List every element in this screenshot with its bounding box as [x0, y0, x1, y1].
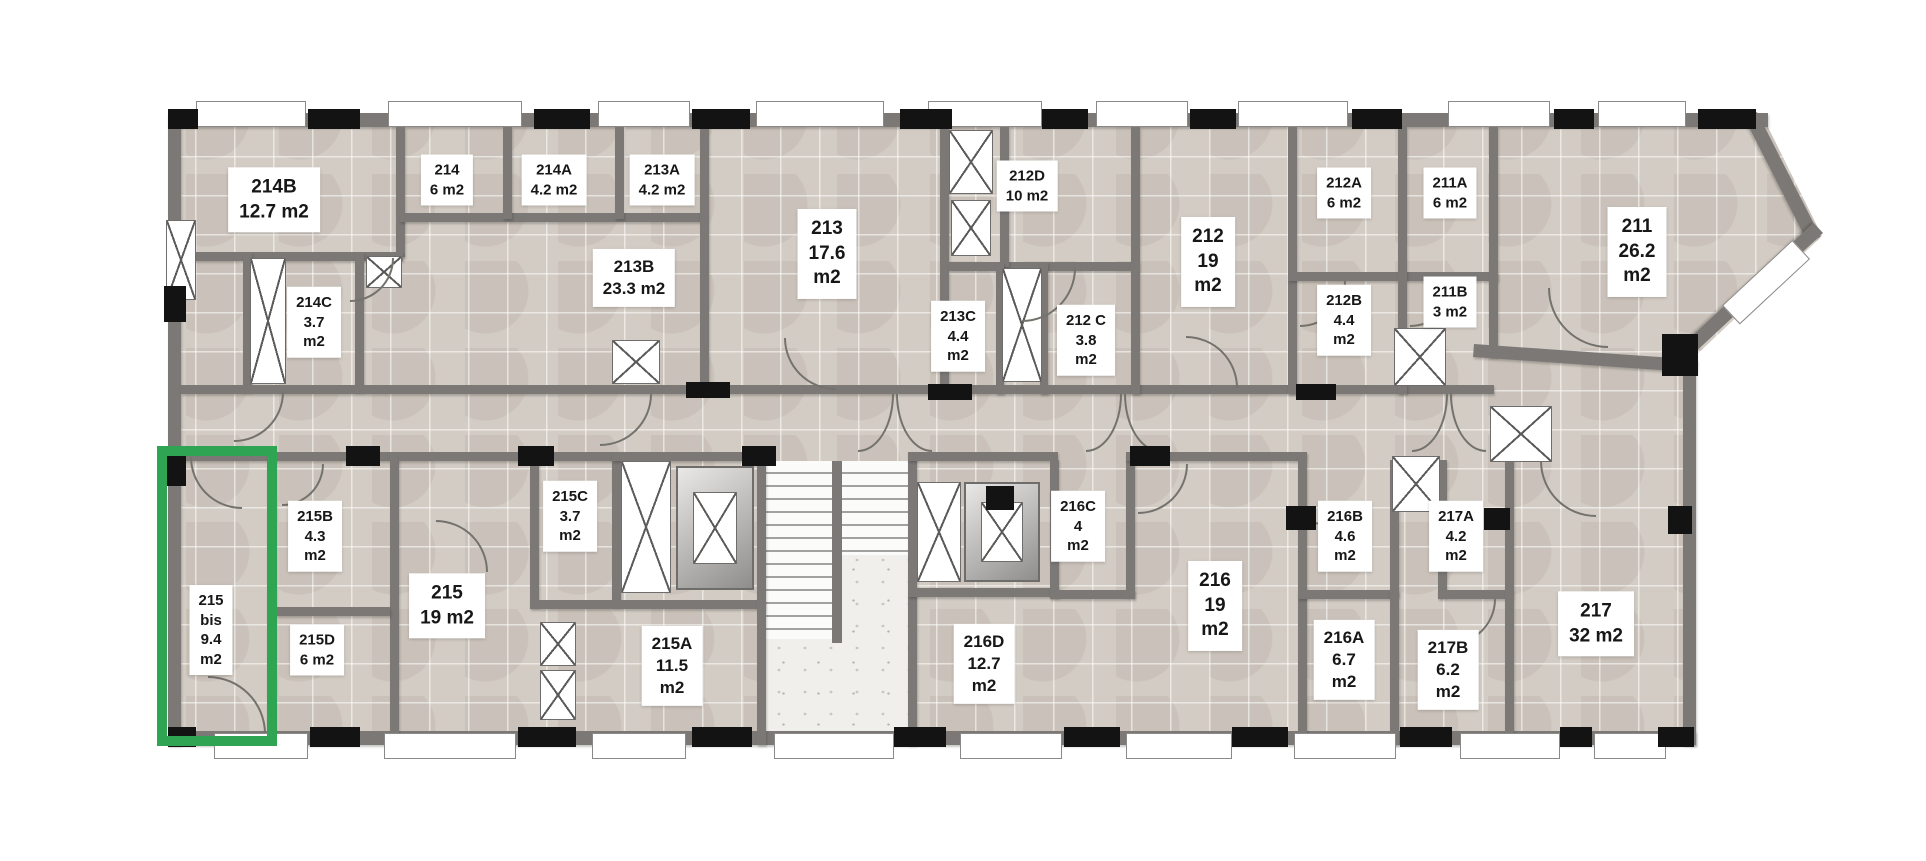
room-label-line: m2: [1326, 330, 1362, 350]
room-label-line: 32 m2: [1569, 624, 1623, 649]
room-label-line: 12.7: [964, 653, 1005, 675]
column-marker: [1042, 109, 1088, 129]
room-label-line: 4.6: [1327, 526, 1363, 546]
column-marker: [1668, 506, 1692, 534]
room-label-212c[interactable]: 212 C3.8m2: [1057, 305, 1115, 376]
shaft-x-icon: [1394, 328, 1446, 386]
room-label-line: m2: [296, 332, 332, 352]
wall-segment: [396, 127, 405, 257]
window: [1126, 733, 1232, 759]
room-label-line: 215D: [299, 631, 335, 651]
window: [388, 101, 522, 127]
column-marker: [1130, 446, 1170, 466]
room-label-line: 214B: [239, 175, 309, 200]
column-marker: [928, 384, 972, 400]
column-marker: [308, 109, 360, 129]
shaft-x-icon: [540, 670, 576, 720]
column-marker: [692, 109, 750, 129]
room-label-line: 215: [420, 581, 474, 606]
room-label-line: 211A: [1432, 174, 1467, 194]
room-label-line: m2: [652, 677, 693, 699]
room-label-line: 212 C: [1066, 311, 1106, 331]
column-marker: [1698, 109, 1756, 129]
shaft-x-icon: [1490, 406, 1552, 462]
selected-room-highlight: [157, 446, 277, 746]
room-label-line: 216: [1199, 569, 1231, 594]
shaft-x-icon: [951, 200, 991, 256]
window: [598, 101, 690, 127]
room-label-line: 17.6: [809, 242, 846, 267]
room-label-line: 3.7: [296, 312, 332, 332]
room-label-line: 216C: [1060, 497, 1096, 517]
window: [1238, 101, 1348, 127]
wall-segment: [400, 213, 706, 222]
wall-segment: [1489, 127, 1498, 357]
room-label-213b[interactable]: 213B23.3 m2: [593, 249, 675, 307]
room-label-213a[interactable]: 213A4.2 m2: [630, 155, 695, 206]
room-label-line: 4.4: [1326, 310, 1362, 330]
wall-segment: [1505, 452, 1514, 745]
window: [1294, 733, 1396, 759]
room-label-216b[interactable]: 216B4.6m2: [1318, 501, 1372, 572]
room-label-214a[interactable]: 214A4.2 m2: [522, 155, 587, 206]
room-label-215a[interactable]: 215A11.5m2: [642, 626, 703, 706]
window: [196, 101, 306, 127]
room-label-215d[interactable]: 215D6 m2: [290, 625, 344, 676]
room-label-line: m2: [1438, 546, 1474, 566]
column-marker: [1554, 109, 1594, 129]
wall-segment: [530, 452, 539, 607]
stair-flight-icon: [842, 461, 908, 555]
room-label-line: 217B: [1428, 637, 1469, 659]
room-label-line: m2: [964, 675, 1005, 697]
room-label-line: 4.2 m2: [531, 180, 578, 200]
room-label-214b[interactable]: 214B12.7 m2: [228, 167, 320, 232]
wall-segment: [390, 452, 399, 745]
stair-divider-wall: [832, 461, 842, 643]
room-label-line: m2: [552, 526, 588, 546]
shaft-x-icon: [540, 622, 576, 666]
room-label-line: 19: [1199, 594, 1231, 619]
room-label-line: 3.7: [552, 506, 588, 526]
room-label-line: 6 m2: [1432, 193, 1467, 213]
room-label-216c[interactable]: 216C4m2: [1051, 491, 1105, 562]
wall-segment: [530, 600, 765, 609]
room-label-211[interactable]: 21126.2m2: [1608, 207, 1667, 297]
room-label-line: 6 m2: [299, 650, 335, 670]
room-label-212a[interactable]: 212A6 m2: [1317, 168, 1371, 219]
column-marker: [1352, 109, 1402, 129]
elevator-car-icon: [693, 492, 737, 564]
room-label-line: 6.7: [1324, 649, 1365, 671]
window: [384, 733, 516, 759]
room-label-216[interactable]: 21619m2: [1188, 561, 1242, 651]
room-label-215c[interactable]: 215C3.7m2: [543, 481, 597, 552]
room-label-216a[interactable]: 216A6.7m2: [1314, 620, 1375, 700]
wall-segment: [908, 452, 1058, 461]
column-marker: [518, 727, 576, 747]
room-label-line: 10 m2: [1006, 186, 1049, 206]
column-marker: [692, 727, 752, 747]
wall-segment: [1131, 127, 1140, 394]
column-marker: [518, 446, 554, 466]
wall-segment: [1438, 590, 1513, 599]
room-label-line: 217: [1569, 599, 1623, 624]
room-label-line: 12.7 m2: [239, 200, 309, 225]
column-marker: [1400, 727, 1452, 747]
room-label-line: m2: [1199, 618, 1231, 643]
room-label-line: 6 m2: [1326, 193, 1362, 213]
elevator-icon: [676, 466, 754, 590]
room-label-214c[interactable]: 214C3.7m2: [287, 287, 341, 358]
room-label-line: 212A: [1326, 174, 1362, 194]
wall-segment: [1683, 352, 1696, 745]
window: [774, 733, 894, 759]
wall-segment: [908, 452, 917, 745]
room-label-line: 211: [1619, 215, 1656, 240]
room-label-line: m2: [1428, 681, 1469, 703]
room-label-line: m2: [1192, 274, 1224, 299]
room-label-line: 6 m2: [430, 180, 464, 200]
room-label-line: 217A: [1438, 507, 1474, 527]
room-label-213c[interactable]: 213C4.4m2: [931, 301, 985, 372]
window: [1096, 101, 1188, 127]
column-marker: [1232, 727, 1288, 747]
column-marker: [310, 727, 360, 747]
room-label-line: 213B: [603, 256, 665, 278]
floor-plan-canvas: 214B12.7 m22146 m2214A4.2 m2213A4.2 m221…: [0, 0, 1926, 861]
room-label-line: 213C: [940, 307, 976, 327]
room-label-line: 214C: [296, 293, 332, 313]
room-label-215b[interactable]: 215B4.3m2: [288, 501, 342, 572]
room-label-line: m2: [809, 266, 846, 291]
room-label-line: 214A: [531, 161, 578, 181]
window: [592, 733, 686, 759]
wall-segment: [612, 452, 621, 607]
room-label-line: 214: [430, 161, 464, 181]
window: [1460, 733, 1560, 759]
room-label-line: m2: [1619, 264, 1656, 289]
room-label-line: 215B: [297, 507, 333, 527]
wall-segment: [1288, 127, 1297, 394]
room-label-line: 19: [1192, 250, 1224, 275]
room-label-211b[interactable]: 211B3 m2: [1423, 277, 1476, 328]
column-marker: [1064, 727, 1120, 747]
shaft-x-icon: [949, 130, 993, 194]
room-label-212b[interactable]: 212B4.4m2: [1317, 285, 1371, 356]
column-marker: [1658, 727, 1694, 747]
room-label-line: 215A: [652, 633, 693, 655]
room-label-215[interactable]: 21519 m2: [409, 573, 485, 638]
room-label-213[interactable]: 21317.6m2: [798, 209, 857, 299]
room-label-line: 23.3 m2: [603, 278, 665, 300]
wall-segment: [1390, 590, 1399, 745]
column-marker: [1286, 506, 1316, 530]
room-label-line: m2: [1060, 536, 1096, 556]
column-marker: [1662, 334, 1698, 376]
room-label-line: 211B: [1432, 283, 1467, 303]
shaft-x-icon: [621, 461, 671, 593]
room-label-line: 4: [1060, 516, 1096, 536]
shaft-x-icon: [917, 482, 961, 582]
room-label-line: 4.3: [297, 526, 333, 546]
wall-segment: [615, 127, 624, 219]
window: [960, 733, 1062, 759]
column-marker: [894, 727, 946, 747]
shaft-x-icon: [250, 258, 286, 384]
wall-segment: [1126, 452, 1135, 597]
column-marker: [742, 446, 776, 466]
column-marker: [686, 382, 730, 398]
room-label-line: 216A: [1324, 627, 1365, 649]
wall-segment: [700, 127, 709, 392]
room-label-217a[interactable]: 217A4.2m2: [1429, 501, 1483, 572]
room-label-line: 19 m2: [420, 606, 474, 631]
column-marker: [346, 446, 380, 466]
room-label-line: 216B: [1327, 507, 1363, 527]
window: [756, 101, 884, 127]
room-label-line: 3 m2: [1432, 302, 1467, 322]
room-label-line: m2: [940, 346, 976, 366]
room-label-line: 6.2: [1428, 659, 1469, 681]
wall-segment: [276, 607, 390, 616]
column-marker: [1296, 384, 1336, 400]
room-label-216d[interactable]: 216D12.7m2: [954, 624, 1015, 704]
column-marker: [900, 109, 952, 129]
wall-segment: [757, 452, 766, 745]
room-label-line: 4.2 m2: [639, 180, 686, 200]
room-label-line: m2: [297, 546, 333, 566]
room-label-line: 26.2: [1619, 240, 1656, 265]
column-marker: [1560, 727, 1592, 747]
wall-segment: [908, 588, 1058, 597]
room-label-line: 216D: [964, 631, 1005, 653]
elevator-car-icon: [981, 502, 1023, 562]
window: [1594, 733, 1666, 759]
column-marker: [164, 286, 186, 322]
column-marker: [168, 109, 198, 129]
column-marker: [1190, 109, 1236, 129]
room-label-line: 215C: [552, 487, 588, 507]
column-marker: [986, 486, 1014, 510]
shaft-x-icon: [612, 340, 660, 384]
room-label-line: 212B: [1326, 291, 1362, 311]
room-label-line: 4.2: [1438, 526, 1474, 546]
room-label-line: 11.5: [652, 655, 693, 677]
stair-flight-icon: [766, 461, 832, 639]
room-label-line: 4.4: [940, 326, 976, 346]
wall-segment: [1298, 590, 1397, 599]
room-label-line: 213A: [639, 161, 686, 181]
room-label-line: 212: [1192, 225, 1224, 250]
wall-segment: [1050, 590, 1135, 599]
column-marker: [1484, 508, 1510, 530]
room-label-217b[interactable]: 217B6.2m2: [1418, 630, 1479, 710]
room-label-217[interactable]: 21732 m2: [1558, 591, 1634, 656]
room-label-line: 212D: [1006, 167, 1049, 187]
staircase: [766, 461, 908, 736]
room-label-line: 213: [809, 217, 846, 242]
room-label-line: m2: [1066, 350, 1106, 370]
window: [1598, 101, 1686, 127]
room-label-212d[interactable]: 212D10 m2: [997, 161, 1058, 212]
room-label-line: m2: [1327, 546, 1363, 566]
room-label-line: 3.8: [1066, 330, 1106, 350]
column-marker: [534, 109, 590, 129]
window: [1448, 101, 1550, 127]
wall-segment: [503, 127, 512, 219]
room-label-211a[interactable]: 211A6 m2: [1423, 168, 1476, 219]
room-label-214[interactable]: 2146 m2: [421, 155, 473, 206]
room-label-line: m2: [1324, 671, 1365, 693]
wall-segment: [276, 452, 399, 461]
room-label-212[interactable]: 21219m2: [1181, 217, 1235, 307]
